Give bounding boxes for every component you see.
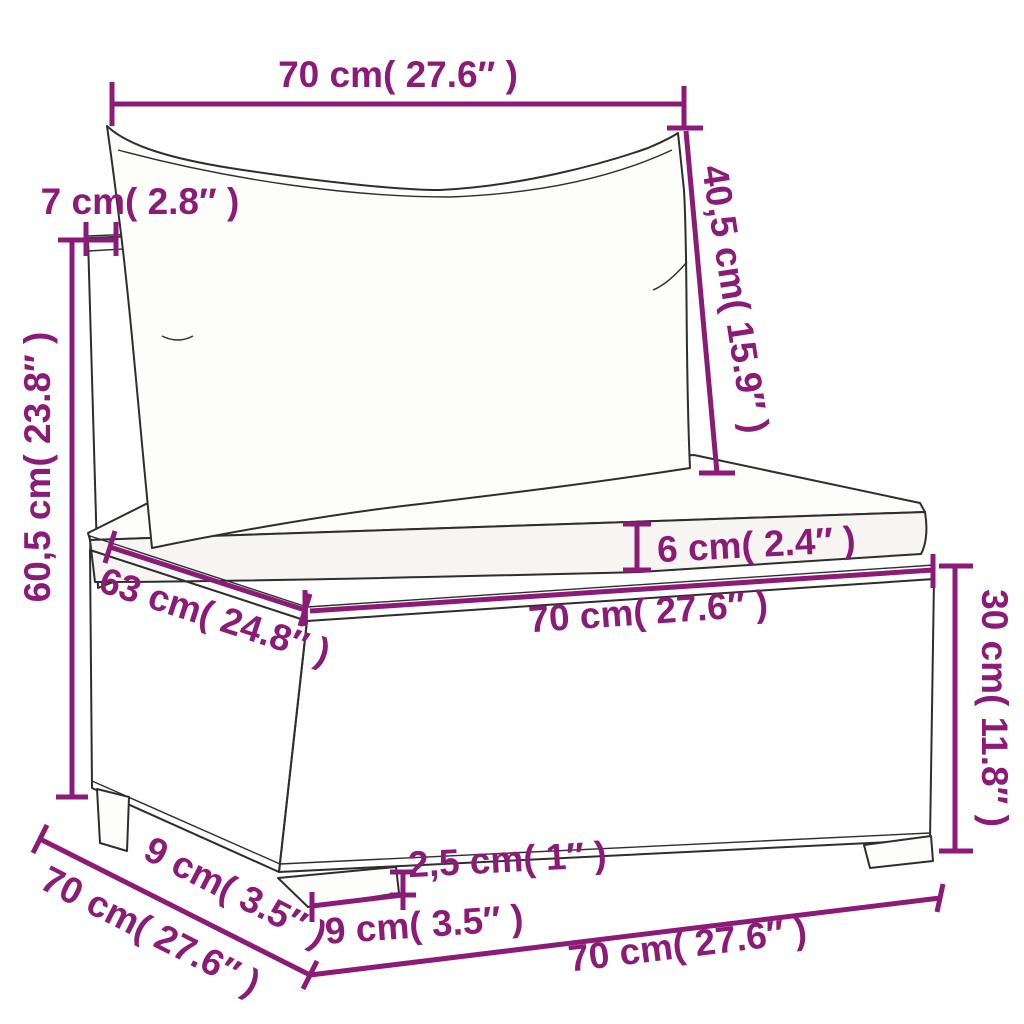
sofa-illustration bbox=[87, 126, 934, 907]
dim-base-height-line bbox=[939, 566, 973, 851]
dim-back-thickness-line bbox=[58, 222, 116, 256]
dim-foot-width-label: 9 cm( 3.5″ ) bbox=[324, 897, 525, 952]
dim-base-height-label: 30 cm( 11.8″ ) bbox=[974, 589, 1015, 827]
dim-total-height-line bbox=[56, 240, 88, 797]
wicker-base bbox=[90, 536, 934, 872]
dim-back-thickness-label: 7 cm( 2.8″ ) bbox=[41, 181, 240, 222]
dim-seat-width-label: 70 cm( 27.6″ ) bbox=[527, 583, 769, 641]
dim-side-depth: 9 cm( 3.5″ ) 70 cm( 27.6″ ) bbox=[33, 825, 334, 1004]
dim-top-width: 70 cm( 27.6″ ) bbox=[112, 54, 684, 130]
dim-bottom-width-label: 70 cm( 27.6″ ) bbox=[566, 910, 809, 980]
dim-total-height-label: 60,5 cm( 23.8″ ) bbox=[17, 332, 58, 603]
dim-foot-height: 2,5 cm( 1″ ) bbox=[390, 834, 608, 895]
foot-back-left bbox=[97, 789, 129, 851]
sofa-dimension-drawing: 70 cm( 27.6″ ) 7 cm( 2.8″ ) 60,5 cm( 23.… bbox=[0, 0, 1024, 1024]
foot-front-right bbox=[864, 836, 933, 868]
dim-total-height: 60,5 cm( 23.8″ ) bbox=[17, 240, 88, 797]
dim-base-height: 30 cm( 11.8″ ) bbox=[939, 566, 1015, 851]
dim-top-width-label: 70 cm( 27.6″ ) bbox=[278, 54, 518, 95]
dim-back-cushion-height-label: 40,5 cm( 15.9″ ) bbox=[694, 162, 777, 436]
dimension-diagram: 70 cm( 27.6″ ) 7 cm( 2.8″ ) 60,5 cm( 23.… bbox=[0, 0, 1024, 1024]
dim-foot-height-label: 2,5 cm( 1″ ) bbox=[407, 834, 608, 885]
